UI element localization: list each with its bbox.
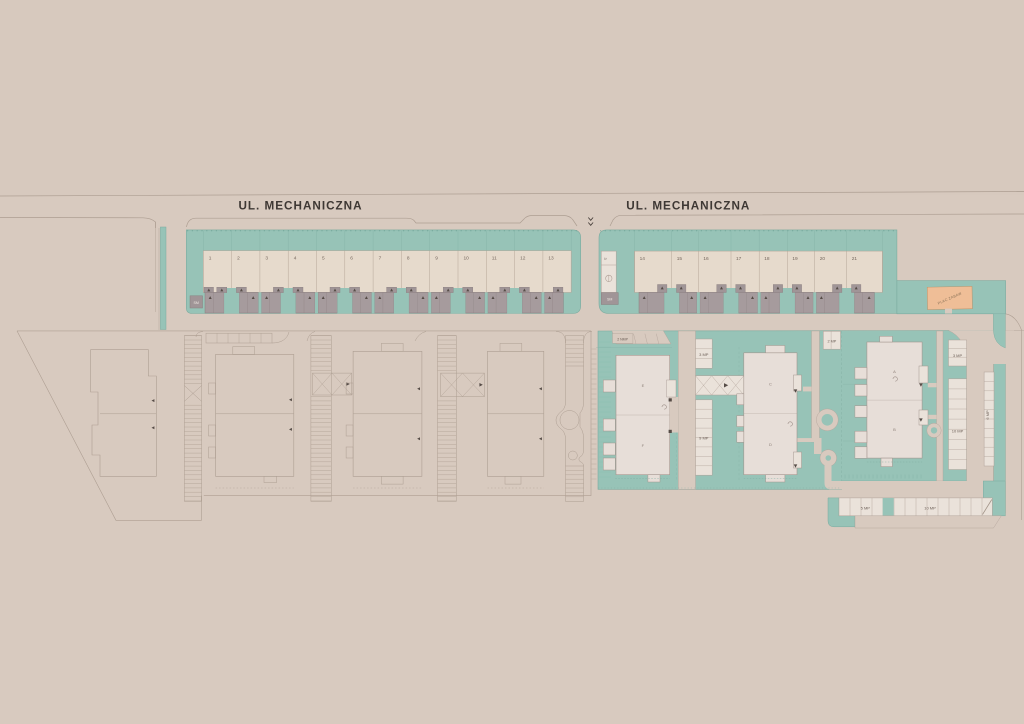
svg-text:6: 6 bbox=[350, 256, 353, 262]
svg-text:4: 4 bbox=[294, 256, 297, 262]
svg-text:E: E bbox=[642, 383, 645, 388]
svg-text:B: B bbox=[893, 427, 896, 432]
svg-text:13: 13 bbox=[548, 256, 554, 262]
svg-text:SM: SM bbox=[194, 301, 199, 305]
svg-text:14: 14 bbox=[640, 256, 646, 262]
svg-text:20: 20 bbox=[820, 256, 826, 262]
svg-text:10 MP: 10 MP bbox=[924, 505, 936, 510]
svg-text:12: 12 bbox=[520, 256, 526, 262]
svg-text:9: 9 bbox=[435, 256, 438, 262]
svg-text:7: 7 bbox=[379, 256, 382, 262]
svg-text:UL. MECHANICZNA: UL. MECHANICZNA bbox=[626, 200, 750, 213]
svg-text:10 MP: 10 MP bbox=[952, 429, 964, 434]
svg-text:9 MP: 9 MP bbox=[699, 436, 709, 441]
svg-text:3: 3 bbox=[265, 256, 268, 262]
svg-text:D: D bbox=[769, 442, 772, 447]
svg-text:11: 11 bbox=[492, 256, 497, 262]
svg-text:1: 1 bbox=[209, 256, 212, 262]
svg-text:5: 5 bbox=[322, 256, 325, 262]
svg-text:2 NMP: 2 NMP bbox=[617, 338, 628, 342]
svg-text:15: 15 bbox=[677, 256, 683, 262]
svg-text:UL. MECHANICZNA: UL. MECHANICZNA bbox=[238, 200, 362, 213]
svg-text:5 MP: 5 MP bbox=[861, 505, 871, 510]
svg-text:C: C bbox=[769, 381, 772, 386]
svg-text:21: 21 bbox=[852, 256, 858, 262]
svg-text:6 MP: 6 MP bbox=[985, 410, 990, 420]
svg-text:18: 18 bbox=[764, 256, 770, 262]
svg-text:19: 19 bbox=[792, 256, 798, 262]
svg-text:A: A bbox=[893, 369, 896, 374]
svg-text:8: 8 bbox=[407, 256, 410, 262]
svg-text:17: 17 bbox=[736, 256, 742, 262]
svg-text:16: 16 bbox=[703, 256, 709, 262]
svg-text:2: 2 bbox=[237, 256, 240, 262]
svg-text:SM: SM bbox=[607, 298, 612, 302]
svg-text:2 MP: 2 MP bbox=[827, 340, 836, 344]
svg-text:3 MP: 3 MP bbox=[699, 352, 709, 357]
svg-text:10: 10 bbox=[464, 256, 470, 262]
svg-text:3 MP: 3 MP bbox=[953, 353, 963, 358]
